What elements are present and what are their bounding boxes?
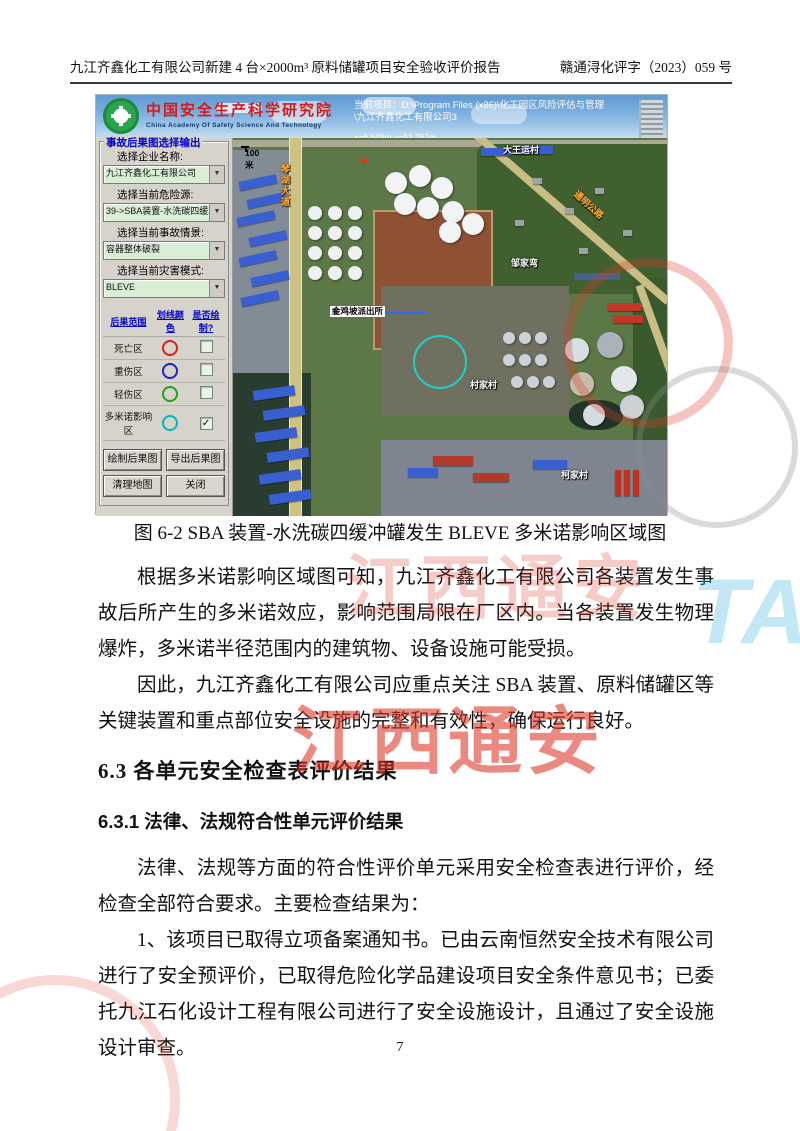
zone-color-ring-icon <box>162 363 178 379</box>
map-place-label: 柯家村 <box>561 468 588 481</box>
map-storage-tank <box>328 246 342 260</box>
zone-draw-cell: ✓ <box>187 406 225 441</box>
map-building <box>608 303 642 311</box>
zone-name: 多米诺影响区 <box>103 406 154 441</box>
dropdown-0[interactable]: 九江齐鑫化工有限公司▼ <box>103 165 225 184</box>
dropdown-value: 容器整体破裂 <box>104 242 209 259</box>
table-row: 轻伤区 <box>103 383 225 406</box>
zone-color-cell <box>154 406 187 441</box>
zone-color-cell <box>154 360 187 383</box>
poi-icon: ▣ <box>332 306 339 317</box>
dropdown-value: 39->SBA装置-水洗碳四缓冲罐V <box>104 204 209 221</box>
map-building <box>623 230 632 236</box>
map-storage-tank <box>348 226 362 240</box>
map-building <box>473 473 509 482</box>
chevron-down-icon[interactable]: ▼ <box>209 242 224 259</box>
map-building <box>615 470 621 496</box>
map-storage-tank <box>417 197 439 219</box>
map-place-label: 村家村 <box>470 378 497 391</box>
map-road-label: 琴湖大道 <box>279 164 292 208</box>
map-storage-tank <box>519 332 531 344</box>
header-doc-number: 赣通浔化评字（2023）059 号 <box>560 56 732 76</box>
map-small-blue-label <box>574 273 620 280</box>
paragraph: 因此，九江齐鑫化工有限公司应重点关注 SBA 装置、原料储罐区等关键装置和重点部… <box>98 668 714 740</box>
app-body: 事故后果图选择输出 选择企业名称:九江齐鑫化工有限公司▼选择当前危险源:39->… <box>96 138 667 516</box>
map-storage-tank <box>348 266 362 280</box>
zone-color-ring-icon <box>162 386 178 402</box>
map-storage-tank <box>462 213 484 235</box>
zone-name: 死亡区 <box>103 337 154 360</box>
map-place-label: 邹家弯 <box>511 256 538 269</box>
zone-color-ring-icon <box>162 340 178 356</box>
map-building <box>533 178 542 184</box>
building-photo <box>639 100 663 138</box>
panel-button[interactable]: 清理地图 <box>103 475 162 497</box>
domino-impact-circle <box>413 335 467 389</box>
map-storage-tank <box>328 266 342 280</box>
poi-leader-line <box>385 312 427 314</box>
satellite-map[interactable]: 100米 大王运村邹家弯村家村柯家村▣金鸡坡派出所琴湖大道通明公路 <box>233 138 667 516</box>
map-storage-tank <box>308 206 322 220</box>
map-storage-tank <box>442 201 464 223</box>
map-building <box>595 188 604 194</box>
draw-checkbox[interactable] <box>200 386 213 399</box>
body-text: 根据多米诺影响区域图可知，九江齐鑫化工有限公司各装置发生事故后所产生的多米诺效应… <box>98 560 714 1067</box>
map-storage-tank <box>439 221 461 243</box>
section-heading: 6.3.1 法律、法规符合性单元评价结果 <box>98 804 714 840</box>
zone-color-cell <box>154 337 187 360</box>
map-storage-tank <box>535 354 547 366</box>
section-heading: 6.3 各单元安全检查表评价结果 <box>98 753 714 789</box>
map-storage-tank <box>519 354 531 366</box>
table-header-row: 后果范围划线颜色是否绘制? <box>103 306 225 337</box>
chevron-down-icon[interactable]: ▼ <box>209 280 224 297</box>
map-building <box>613 315 643 323</box>
map-storage-tank <box>308 266 322 280</box>
map-storage-tank <box>543 376 555 388</box>
current-project-block: 当前项目：D:\Program Files (x86)\化工园区风险评估与管理\… <box>354 100 614 138</box>
map-storage-tank <box>535 332 547 344</box>
org-title-block: 中国安全生产科学研究院 China Academy Of Safety Scie… <box>146 99 333 129</box>
paragraph: 根据多米诺影响区域图可知，九江齐鑫化工有限公司各装置发生事故后所产生的多米诺效应… <box>98 560 714 668</box>
table-row: 重伤区 <box>103 360 225 383</box>
map-red-marker <box>361 158 367 164</box>
dropdown-1[interactable]: 39->SBA装置-水洗碳四缓冲罐V▼ <box>103 203 225 222</box>
map-storage-tank <box>328 226 342 240</box>
draw-checkbox[interactable] <box>200 340 213 353</box>
map-storage-tank <box>308 246 322 260</box>
org-name-cn: 中国安全生产科学研究院 <box>146 99 333 120</box>
zone-draw-cell <box>187 337 225 360</box>
map-storage-tank <box>611 366 637 392</box>
map-building <box>515 220 524 226</box>
table-header: 划线颜色 <box>154 306 187 337</box>
page-number: 7 <box>0 1040 800 1056</box>
app-banner: 中国安全生产科学研究院 China Academy Of Safety Scie… <box>96 95 667 138</box>
map-place-label: 大王运村 <box>503 143 539 156</box>
document-header: 九江齐鑫化工有限公司新建 4 台×2000m³ 原料储罐项目安全验收评价报告 赣… <box>70 56 732 84</box>
map-storage-tank <box>385 172 407 194</box>
map-storage-tank <box>328 206 342 220</box>
dropdown-value: 九江齐鑫化工有限公司 <box>104 166 209 183</box>
control-panel: 事故后果图选择输出 选择企业名称:九江齐鑫化工有限公司▼选择当前危险源:39->… <box>96 138 233 516</box>
map-storage-tank <box>409 165 431 187</box>
chevron-down-icon[interactable]: ▼ <box>209 204 224 221</box>
dropdown-2[interactable]: 容器整体破裂▼ <box>103 241 225 260</box>
report-page: 九江齐鑫化工有限公司新建 4 台×2000m³ 原料储罐项目安全验收评价报告 赣… <box>0 0 800 1131</box>
map-storage-tank <box>394 193 416 215</box>
paragraph: 法律、法规等方面的符合性评价单元采用安全检查表进行评价，经检查全部符合要求。主要… <box>98 851 714 923</box>
chevron-down-icon[interactable]: ▼ <box>209 166 224 183</box>
zone-draw-cell <box>187 383 225 406</box>
map-building <box>408 468 438 477</box>
map-storage-tank <box>431 177 453 199</box>
org-name-en: China Academy Of Safety Science And Tech… <box>146 122 333 129</box>
header-title: 九江齐鑫化工有限公司新建 4 台×2000m³ 原料储罐项目安全验收评价报告 <box>70 56 501 76</box>
figure-caption: 图 6-2 SBA 装置-水洗碳四缓冲罐发生 BLEVE 多米诺影响区域图 <box>0 518 800 545</box>
map-poi-label: ▣金鸡坡派出所 <box>329 305 386 318</box>
consequence-table: 后果范围划线颜色是否绘制?死亡区重伤区轻伤区多米诺影响区✓ <box>103 306 225 441</box>
map-facility-area <box>381 286 569 416</box>
current-project-path: 当前项目：D:\Program Files (x86)\化工园区风险评估与管理\… <box>354 100 614 124</box>
map-building <box>579 248 588 254</box>
table-row: 死亡区 <box>103 337 225 360</box>
map-storage-tank <box>511 376 523 388</box>
map-building <box>624 470 630 496</box>
map-storage-tank <box>570 372 594 396</box>
map-storage-tank <box>620 395 644 419</box>
draw-checkbox[interactable]: ✓ <box>200 417 213 430</box>
field-label: 选择企业名称: <box>117 149 225 164</box>
zone-name: 轻伤区 <box>103 383 154 406</box>
table-header: 后果范围 <box>103 306 154 337</box>
panel-button[interactable]: 绘制后果图 <box>103 449 162 471</box>
table-header: 是否绘制? <box>187 306 225 337</box>
zone-name: 重伤区 <box>103 360 154 383</box>
dropdown-value: BLEVE <box>104 280 209 297</box>
table-row: 多米诺影响区✓ <box>103 406 225 441</box>
map-storage-tank <box>348 206 362 220</box>
output-groupbox: 事故后果图选择输出 选择企业名称:九江齐鑫化工有限公司▼选择当前危险源:39->… <box>99 141 229 506</box>
map-storage-tank <box>348 246 362 260</box>
zone-color-ring-icon <box>162 415 178 431</box>
map-building <box>633 470 639 496</box>
zone-draw-cell <box>187 360 225 383</box>
map-storage-tank <box>527 376 539 388</box>
map-storage-tank <box>503 354 515 366</box>
field-label: 选择当前灾害模式: <box>117 263 225 278</box>
map-storage-tank <box>583 404 605 426</box>
panel-button[interactable]: 导出后果图 <box>166 449 225 471</box>
draw-checkbox[interactable] <box>200 363 213 376</box>
panel-button[interactable]: 关闭 <box>166 475 225 497</box>
casst-logo-icon <box>103 98 139 134</box>
field-label: 选择当前危险源: <box>117 187 225 202</box>
map-storage-tank <box>565 338 589 362</box>
cursor-coordinates: x=6.649m y=92.267m <box>354 131 614 138</box>
map-storage-tank <box>308 226 322 240</box>
zone-color-cell <box>154 383 187 406</box>
map-building <box>565 208 574 214</box>
map-building <box>433 456 473 466</box>
groupbox-title: 事故后果图选择输出 <box>104 135 203 150</box>
dropdown-3[interactable]: BLEVE▼ <box>103 279 225 298</box>
field-label: 选择当前事故情景: <box>117 225 225 240</box>
map-storage-tank <box>503 332 515 344</box>
app-screenshot: 中国安全生产科学研究院 China Academy Of Safety Scie… <box>95 94 668 515</box>
map-scale-label: 100米 <box>245 147 259 171</box>
map-storage-tank <box>597 332 623 358</box>
map-scale: 100米 <box>241 146 249 148</box>
